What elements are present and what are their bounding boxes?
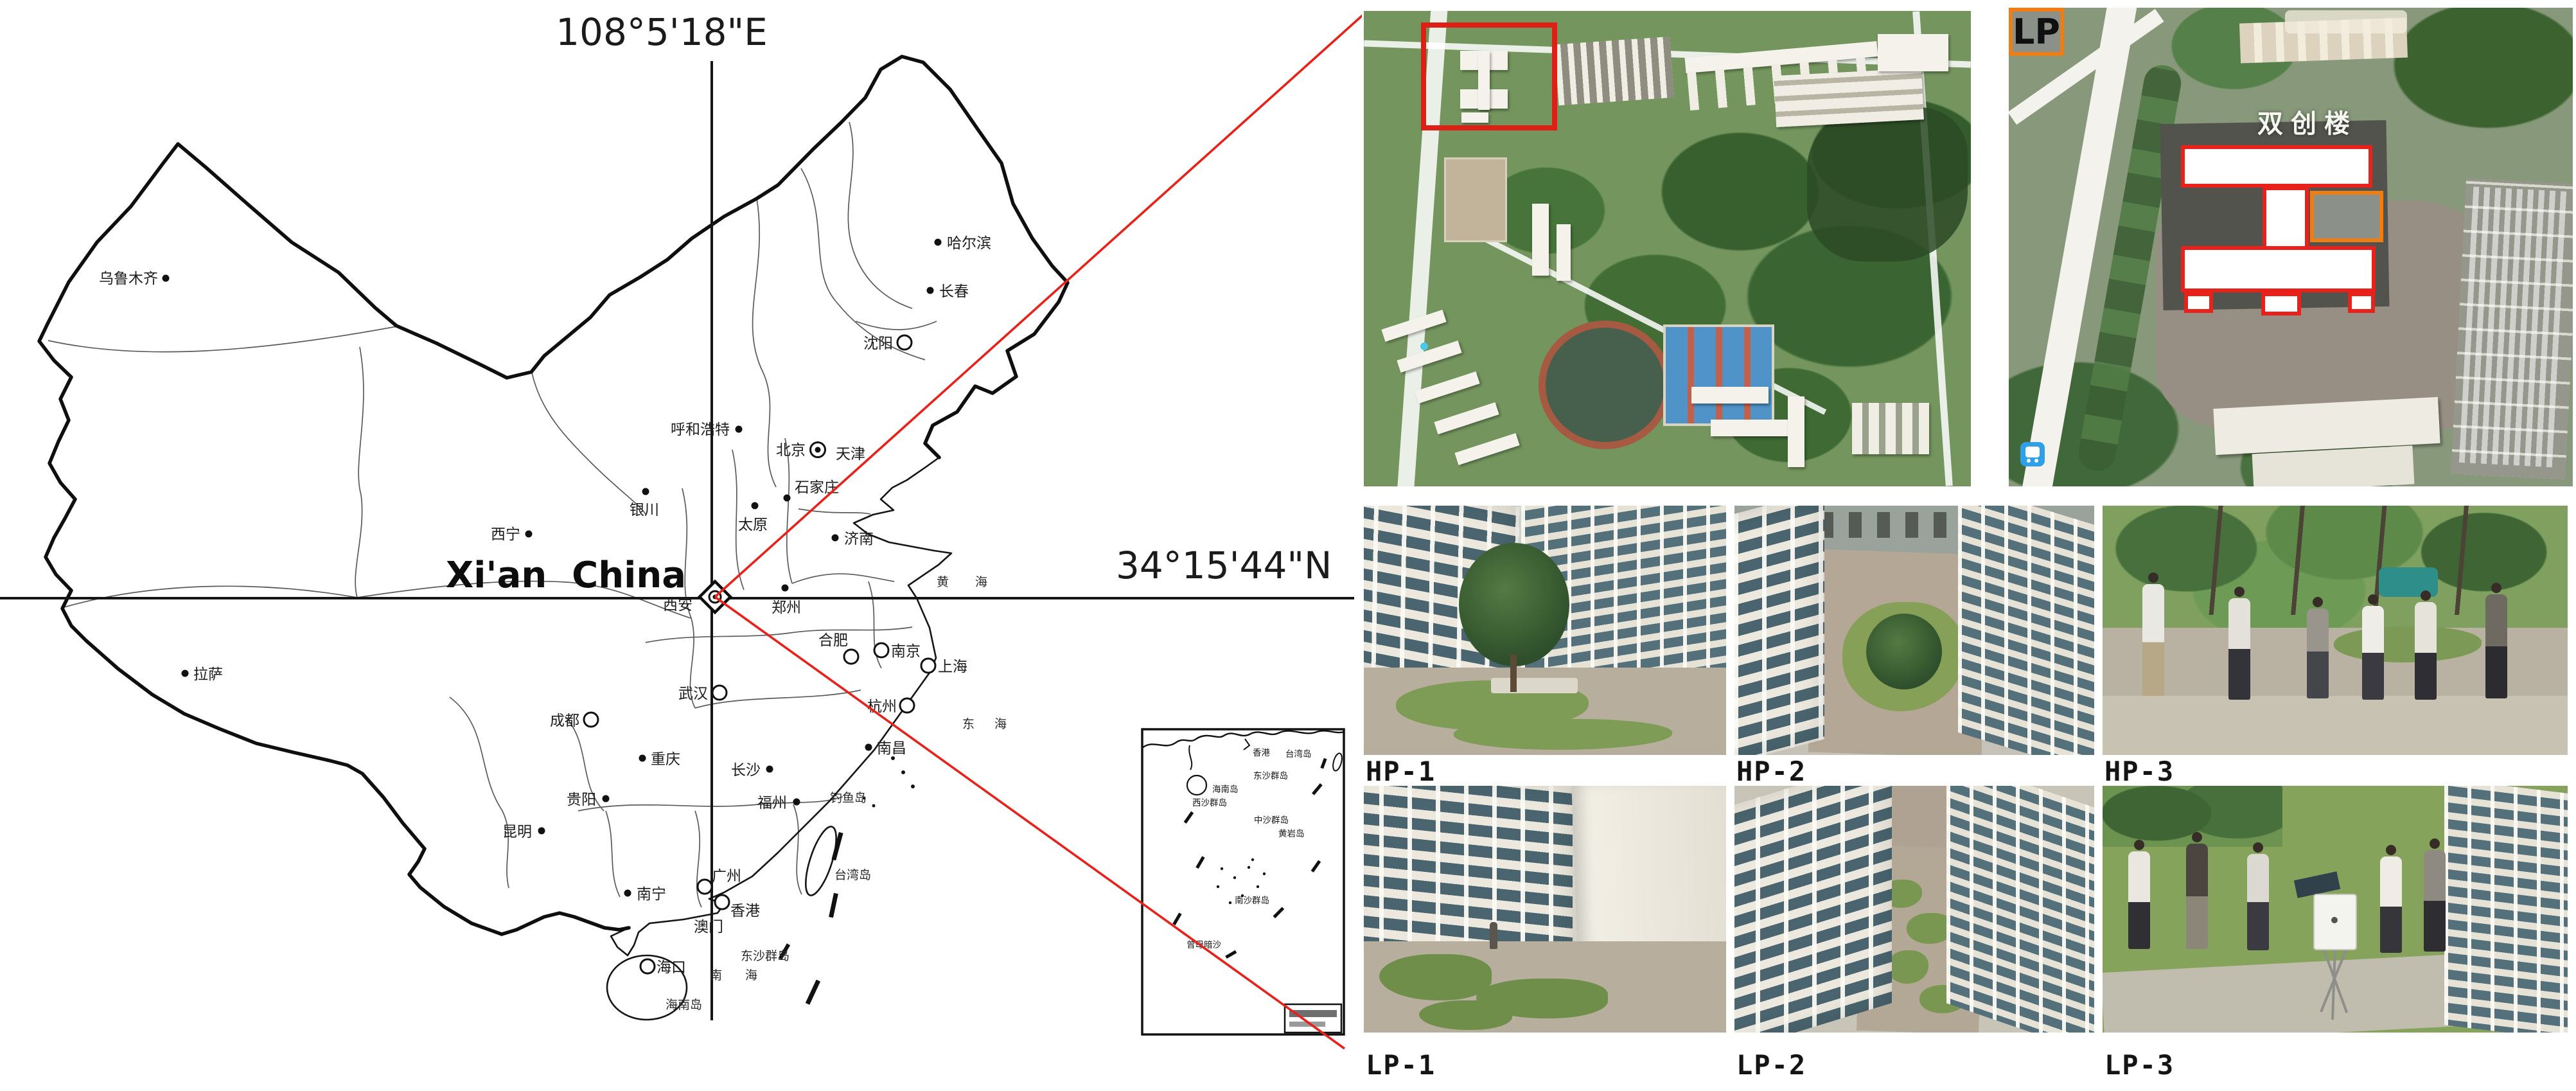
inset-island-label: 台湾岛	[1285, 749, 1312, 759]
latitude-label: 34°15'44"N	[1116, 544, 1332, 587]
inset-island-label: 南沙群岛	[1235, 896, 1269, 906]
city-dot	[793, 799, 800, 806]
lp3-right-building	[2444, 786, 2568, 1033]
bus-stop-dot	[1420, 342, 1428, 350]
mid-building	[1532, 204, 1549, 276]
lp2-left-building	[1734, 786, 1892, 1033]
person	[2128, 840, 2150, 949]
city-layer: 乌鲁木齐哈尔滨长春沈阳呼和浩特北京天津石家庄太原济南银川西宁拉萨郑州西安成都重庆…	[99, 235, 991, 976]
south-building	[1691, 387, 1769, 404]
hp1-tree	[1459, 543, 1569, 666]
person	[2424, 838, 2446, 952]
city-dot	[538, 828, 545, 835]
city-label: 海口	[657, 959, 686, 976]
city-dot	[935, 239, 942, 246]
city-label: 郑州	[772, 599, 801, 616]
overlay-tab-1	[2184, 292, 2213, 313]
inset-island-label: 东沙群岛	[1253, 771, 1288, 781]
campus-satellite-image	[1364, 11, 1971, 486]
hp2-tree	[1866, 614, 1942, 689]
roof-label: 双创楼	[2234, 103, 2381, 132]
photo-lp1	[1364, 786, 1726, 1033]
city-circle	[844, 650, 858, 664]
label-lp2: LP-2	[1736, 1049, 1806, 1081]
overlay-lp-wing: LP	[2009, 8, 2064, 56]
sea-island-label: 南	[710, 968, 722, 982]
city-dot	[182, 670, 189, 677]
city-label: 长沙	[731, 762, 761, 779]
city-label: 贵阳	[567, 792, 596, 808]
label-hp2: HP-2	[1736, 756, 1806, 787]
city-label: 西安	[663, 597, 693, 614]
city-label: 杭州	[867, 698, 897, 715]
city-dot	[525, 531, 533, 538]
lp-label: LP	[2013, 12, 2060, 52]
city-label: 澳门	[694, 919, 723, 936]
person	[2362, 594, 2384, 700]
inset-island-label: 海南岛	[1212, 785, 1239, 795]
city-dot	[766, 766, 773, 773]
city-label: 昆明	[502, 824, 532, 840]
campus-dark-trees	[1807, 107, 1968, 262]
sea-island-label: 海	[975, 575, 987, 589]
sea-island-label: 台湾岛	[834, 868, 871, 882]
tennis-courts	[1666, 327, 1772, 423]
parking-structure	[1555, 37, 1674, 105]
inset-island-label: 黄岩岛	[1278, 829, 1305, 839]
city-label: 银川	[630, 502, 659, 519]
label-hp1: HP-1	[1366, 756, 1436, 787]
city-dot	[736, 426, 743, 433]
hp1-sign	[1491, 678, 1578, 693]
city-dot	[642, 488, 649, 495]
overlay-bottom-bar	[2181, 246, 2376, 292]
city-dot	[603, 795, 610, 803]
city-circle	[640, 959, 655, 973]
bus-glyph-body	[2025, 447, 2040, 457]
label-lp1: LP-1	[1366, 1049, 1436, 1081]
city-label: 长春	[939, 283, 969, 300]
hp3-trunks	[2141, 506, 2527, 615]
national-border	[39, 57, 1068, 934]
sea-island-label: 东沙群岛	[741, 949, 790, 963]
photo-lp2	[1734, 786, 2094, 1033]
hp3-grass	[2334, 626, 2482, 662]
city-label: 哈尔滨	[947, 235, 991, 252]
overlay-tab-2	[2261, 292, 2301, 315]
bus-glyph-wheel	[2034, 459, 2038, 463]
city-label: 呼和浩特	[671, 421, 730, 438]
photo-hp1	[1364, 506, 1726, 755]
instrument-port	[2331, 917, 2338, 923]
person	[2247, 842, 2269, 950]
lp3-instrument-box	[2313, 894, 2357, 950]
bus-stop-icon	[2020, 442, 2045, 466]
province-borders	[48, 122, 937, 907]
person	[2415, 590, 2437, 700]
sea-island-label: 钓鱼岛	[830, 791, 867, 805]
site-label: Xi'an China	[446, 554, 686, 596]
sea-island-label: 海	[745, 968, 757, 982]
city-circle	[715, 895, 729, 909]
city-dot	[927, 287, 934, 294]
photo-hp2	[1734, 506, 2094, 755]
lp1-person	[1490, 922, 1497, 949]
city-label: 上海	[938, 659, 967, 675]
city-dot	[832, 535, 839, 542]
person	[2380, 845, 2402, 953]
city-circle	[897, 335, 912, 350]
city-circle	[698, 880, 712, 894]
city-dot	[784, 495, 791, 502]
sea-island-label: 海南岛	[666, 998, 702, 1012]
city-label: 拉萨	[193, 666, 223, 683]
highlight-red-box	[1421, 22, 1557, 130]
hp3-path	[2103, 696, 2568, 755]
lp1-grass	[1419, 1000, 1512, 1030]
person	[2485, 583, 2507, 698]
city-circle	[874, 643, 888, 657]
city-label: 乌鲁木齐	[99, 271, 158, 287]
city-label: 成都	[550, 713, 579, 729]
city-circle	[584, 713, 598, 727]
city-label: 武汉	[678, 686, 708, 702]
sea-island-label: 东	[962, 717, 975, 731]
annex-building-topright	[1878, 34, 1948, 71]
city-circle	[712, 686, 727, 700]
overlay-hp-wing	[2310, 191, 2383, 242]
sea-island-label: 海	[994, 717, 1007, 731]
city-dot	[782, 585, 789, 592]
city-dot	[163, 275, 170, 282]
city-label: 香港	[730, 903, 760, 919]
person	[2307, 597, 2329, 698]
label-hp3: HP-3	[2104, 756, 2175, 787]
mid-building	[1557, 224, 1571, 281]
city-label: 合肥	[818, 632, 848, 649]
athletics-track	[1539, 321, 1672, 449]
capital-dot	[815, 447, 821, 453]
taiwan-island	[800, 823, 843, 898]
person	[2186, 832, 2208, 949]
city-label: 北京	[776, 442, 806, 459]
inset-island-label: 中沙群岛	[1254, 815, 1289, 826]
city-label: 石家庄	[795, 479, 839, 496]
inset-legend	[1285, 1004, 1341, 1033]
city-label: 太原	[738, 517, 768, 533]
person	[2228, 587, 2250, 700]
lp2-right-building	[1946, 786, 2094, 1033]
hp2-left-building	[1734, 506, 1824, 755]
longitude-label: 108°5'18"E	[556, 10, 768, 54]
city-label: 福州	[757, 795, 787, 812]
photo-hp3	[2103, 506, 2568, 755]
south-building	[1711, 420, 1788, 436]
city-label: 广州	[712, 868, 741, 885]
inset-island-label: 香港	[1253, 748, 1271, 758]
label-lp3: LP-3	[2104, 1049, 2175, 1081]
overlay-tab-3	[2348, 292, 2375, 313]
building-satellite-image: 双创楼 LP	[2009, 8, 2573, 486]
city-label: 南宁	[637, 886, 666, 903]
city-dot	[624, 890, 631, 897]
south-china-sea-inset: 香港台湾岛东沙群岛海南岛西沙群岛中沙群岛黄岩岛南沙群岛曾母暗沙	[1142, 729, 1344, 1034]
city-dot	[752, 502, 759, 510]
city-dot	[639, 755, 646, 762]
city-label: 沈阳	[863, 335, 893, 352]
city-label: 重庆	[651, 751, 680, 768]
hp1-tree-trunk	[1510, 655, 1517, 692]
leader-line-top	[715, 14, 1362, 597]
inset-island-label: 西沙群岛	[1192, 798, 1227, 808]
city-label: 南昌	[877, 740, 906, 757]
big-building-right	[1774, 68, 1924, 127]
city-label: 南京	[891, 643, 921, 660]
photo-lp3	[2103, 786, 2568, 1033]
overlay-top-bar	[2181, 145, 2372, 188]
hp2-right-building	[1958, 506, 2094, 755]
person	[2142, 572, 2164, 696]
south-building	[1788, 396, 1804, 467]
city-label: 天津	[836, 446, 865, 463]
city-circle	[921, 659, 935, 673]
north-sign-blob	[2285, 10, 2407, 33]
overlay-core	[2263, 186, 2309, 251]
lp1-grass	[1379, 954, 1492, 1000]
sea-island-label: 黄	[937, 575, 949, 589]
bus-glyph-wheel	[2027, 459, 2031, 463]
city-circle	[900, 698, 914, 713]
figure: 108°5'18"E 34°15'44"N Xi'an China 乌鲁木齐哈尔…	[0, 0, 2576, 1091]
city-label: 济南	[844, 531, 874, 547]
city-dot	[865, 744, 872, 751]
city-label: 西宁	[491, 526, 520, 543]
south-building	[1852, 403, 1929, 454]
parking-cars	[2459, 186, 2570, 467]
sports-court-tan	[1444, 157, 1507, 242]
china-map: 108°5'18"E 34°15'44"N Xi'an China 乌鲁木齐哈尔…	[0, 0, 1362, 1091]
